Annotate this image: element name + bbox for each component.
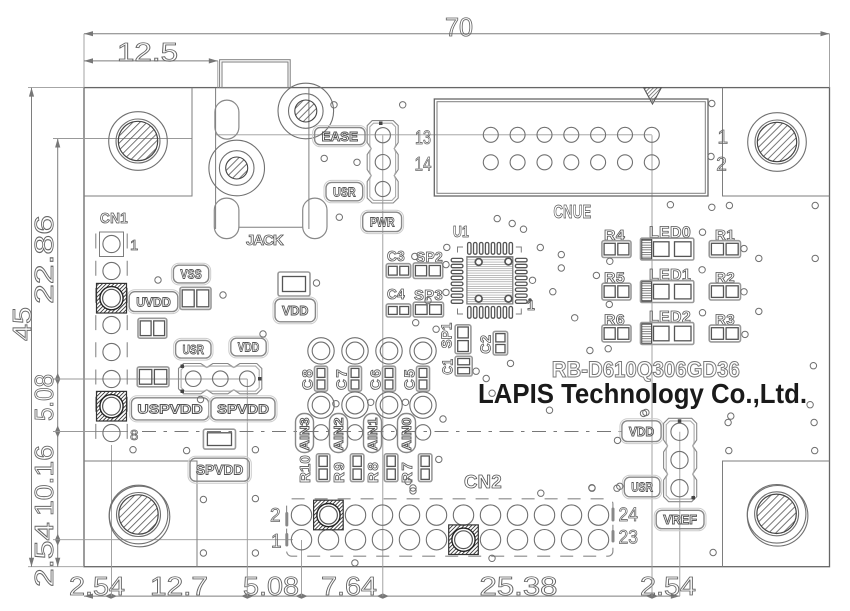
svg-text:LED2: LED2 bbox=[649, 309, 691, 326]
svg-text:5.08: 5.08 bbox=[29, 374, 59, 421]
svg-text:C4: C4 bbox=[387, 286, 405, 303]
svg-text:USR: USR bbox=[631, 480, 653, 495]
svg-text:23: 23 bbox=[619, 528, 639, 549]
svg-text:LAPIS Technology Co.,Ltd.: LAPIS Technology Co.,Ltd. bbox=[478, 378, 807, 409]
svg-text:PWR: PWR bbox=[370, 215, 395, 230]
svg-text:45: 45 bbox=[7, 307, 37, 341]
svg-text:CNUE: CNUE bbox=[554, 201, 592, 222]
svg-text:2: 2 bbox=[270, 506, 281, 527]
svg-text:USR: USR bbox=[183, 342, 205, 357]
svg-text:R5: R5 bbox=[604, 270, 625, 287]
svg-text:VSS: VSS bbox=[180, 267, 202, 282]
svg-text:CN2: CN2 bbox=[464, 472, 502, 492]
svg-text:VDD: VDD bbox=[238, 340, 259, 355]
svg-text:UVDD: UVDD bbox=[136, 294, 171, 309]
svg-text:R4: R4 bbox=[604, 227, 625, 244]
svg-text:C2: C2 bbox=[478, 335, 495, 354]
svg-text:14: 14 bbox=[415, 154, 432, 175]
svg-text:22.86: 22.86 bbox=[29, 215, 59, 304]
svg-text:1: 1 bbox=[271, 532, 282, 553]
svg-text:SP1: SP1 bbox=[439, 322, 456, 348]
svg-text:SP3: SP3 bbox=[414, 287, 443, 304]
svg-text:U1: U1 bbox=[453, 224, 469, 241]
svg-text:AIN3: AIN3 bbox=[298, 417, 312, 450]
svg-text:R2: R2 bbox=[715, 270, 735, 287]
svg-text:2: 2 bbox=[716, 154, 727, 175]
svg-text:SPVDD: SPVDD bbox=[196, 462, 243, 478]
svg-text:VDD: VDD bbox=[282, 303, 308, 318]
svg-text:LED1: LED1 bbox=[649, 267, 691, 284]
svg-text:R9: R9 bbox=[331, 462, 348, 483]
svg-text:12.7: 12.7 bbox=[150, 571, 208, 601]
svg-text:EASE: EASE bbox=[322, 129, 359, 144]
svg-text:25.38: 25.38 bbox=[480, 571, 558, 601]
svg-text:24: 24 bbox=[619, 505, 639, 526]
svg-text:AIN0: AIN0 bbox=[400, 417, 414, 450]
svg-text:13: 13 bbox=[415, 128, 431, 149]
svg-text:USPVDD: USPVDD bbox=[137, 402, 202, 417]
svg-text:R6: R6 bbox=[604, 312, 625, 329]
svg-text:USR: USR bbox=[333, 184, 356, 199]
svg-text:1: 1 bbox=[718, 128, 729, 149]
svg-text:JACK: JACK bbox=[246, 232, 284, 249]
svg-text:SPVDD: SPVDD bbox=[217, 402, 269, 417]
svg-text:2.54: 2.54 bbox=[29, 522, 59, 587]
svg-text:VDD: VDD bbox=[629, 424, 654, 439]
svg-text:C3: C3 bbox=[387, 248, 405, 265]
svg-text:R7: R7 bbox=[399, 462, 416, 483]
svg-text:VREF: VREF bbox=[663, 512, 697, 527]
svg-text:7.64: 7.64 bbox=[321, 571, 377, 601]
svg-text:R10: R10 bbox=[297, 455, 314, 483]
svg-text:CN1: CN1 bbox=[100, 210, 128, 227]
svg-text:AIN1: AIN1 bbox=[366, 417, 380, 450]
svg-text:C1: C1 bbox=[440, 359, 457, 375]
svg-text:R3: R3 bbox=[715, 312, 735, 329]
svg-text:2.54: 2.54 bbox=[640, 571, 696, 601]
svg-text:2.54: 2.54 bbox=[69, 571, 125, 601]
svg-text:70: 70 bbox=[445, 12, 473, 42]
svg-text:AIN2: AIN2 bbox=[332, 417, 346, 450]
svg-text:R1: R1 bbox=[715, 227, 735, 244]
svg-text:LED0: LED0 bbox=[649, 225, 691, 242]
svg-text:8: 8 bbox=[130, 427, 138, 444]
svg-text:10.16: 10.16 bbox=[29, 445, 59, 516]
svg-text:R8: R8 bbox=[365, 462, 382, 483]
svg-text:5.08: 5.08 bbox=[243, 571, 299, 601]
svg-text:12.5: 12.5 bbox=[117, 37, 178, 67]
svg-text:1: 1 bbox=[130, 237, 138, 254]
